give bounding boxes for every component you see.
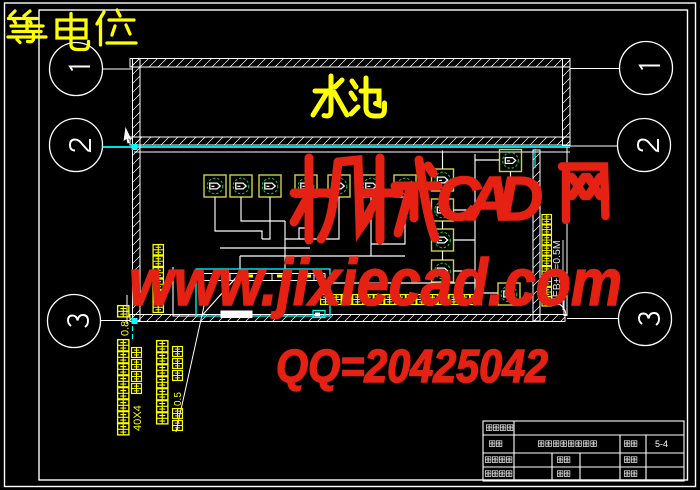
svg-text:QQ=20425042: QQ=20425042: [276, 340, 548, 392]
svg-text:40X4: 40X4: [132, 405, 144, 431]
svg-text:0.5: 0.5: [173, 392, 184, 406]
svg-text:0.8: 0.8: [120, 321, 132, 336]
svg-text:www.jixiecad.com: www.jixiecad.com: [129, 245, 622, 319]
svg-text:5-4: 5-4: [655, 439, 668, 449]
svg-text:CAD: CAD: [436, 165, 543, 234]
